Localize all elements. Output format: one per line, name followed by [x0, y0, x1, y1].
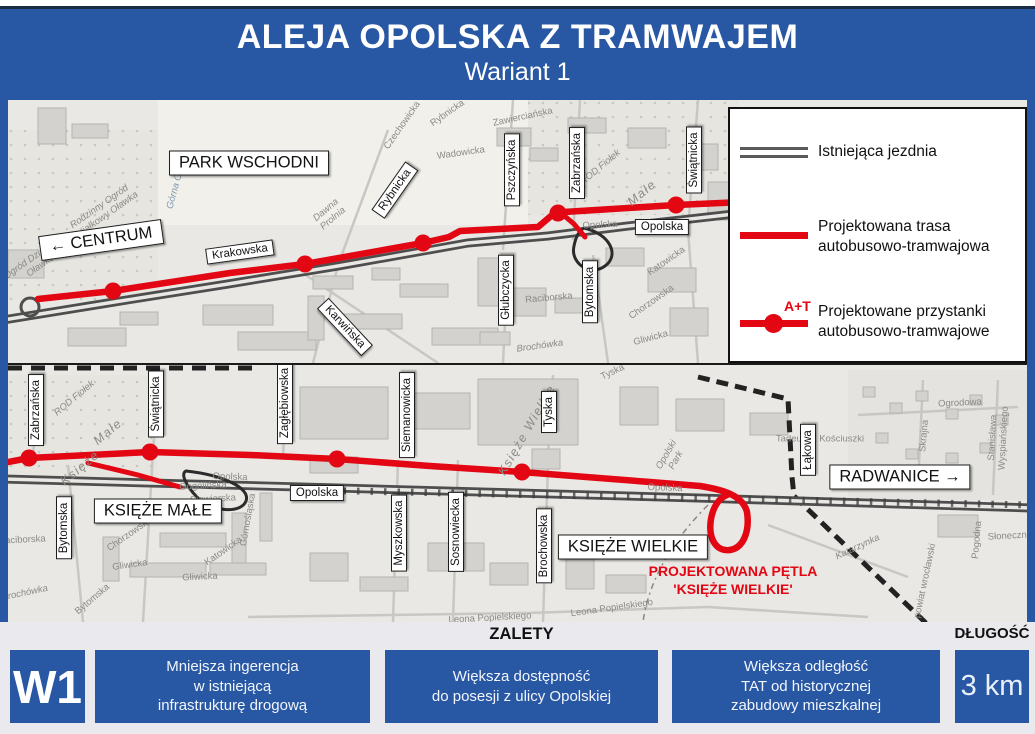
advantage-text: Większa odległość TAT od historycznej za…: [731, 657, 881, 716]
frame-right: [1027, 100, 1035, 622]
stop-dot-icon: [764, 314, 783, 333]
existing-road-swatch: [740, 147, 808, 158]
advantage-box-1: Mniejsza ingerencja w istniejącą infrast…: [95, 650, 370, 723]
legend-label: Projektowane przystanki autobusowo-tramw…: [818, 302, 989, 342]
street-label: Opolska: [635, 219, 689, 235]
street-label: Myszkowska: [391, 494, 407, 571]
street-label: Zabrzańska: [569, 127, 585, 199]
stop-marker-text: A+T: [784, 298, 811, 314]
street-label: Siemanowicka: [399, 372, 415, 458]
advantage-box-2: Większa dostępność do posesji z ulicy Op…: [385, 650, 658, 723]
legend: Istniejąca jezdnia Projektowana trasa au…: [728, 107, 1027, 363]
street-label: Brochowska: [536, 509, 552, 584]
street-label: Głubczycka: [498, 254, 514, 325]
area-label: Słoneczna: [988, 530, 1027, 543]
area-label: Ogrodowa: [938, 397, 982, 410]
slide: ALEJA OPOLSKA Z TRAMWAJEM Wariant 1: [0, 0, 1035, 734]
advantage-text: Mniejsza ingerencja w istniejącą infrast…: [158, 657, 307, 716]
area-label: Gliwicka: [182, 572, 218, 585]
street-label: Zabrzańska: [28, 374, 44, 446]
page-title: ALEJA OPOLSKA Z TRAMWAJEM: [0, 18, 1035, 57]
footer: ZALETY DŁUGOŚĆ W1 Mniejsza ingerencja w …: [0, 622, 1035, 734]
planned-stop-swatch: A+T: [740, 320, 808, 327]
street-label: KSIĘŻE WIELKIE: [558, 535, 708, 560]
map-panel-south: ZabrzańskaŚwiątnickaZagłębiowskaBytomska…: [8, 365, 1027, 622]
advantage-text: Większa dostępność do posesji z ulicy Op…: [432, 667, 611, 706]
street-label: Opolska: [290, 485, 344, 501]
area-label: Opolska: [582, 220, 617, 233]
area-label: Stanisława Wyspiańskiego: [986, 406, 1011, 471]
legend-label: Projektowana trasa autobusowo-tramwajowa: [818, 217, 989, 257]
street-label: Świątnicka: [686, 127, 702, 194]
street-label: Łąkowa: [800, 424, 816, 476]
street-label: Bytomska: [582, 261, 598, 324]
length-value: 3 km: [955, 650, 1029, 723]
street-label: Sosnowiecka: [448, 492, 464, 572]
street-label: Zagłębiowska: [277, 365, 293, 444]
street-label: Świątnicka: [148, 371, 164, 438]
header: ALEJA OPOLSKA Z TRAMWAJEM Wariant 1: [0, 6, 1035, 100]
planned-route-swatch: [740, 232, 808, 239]
street-label: Bytomska: [56, 497, 72, 560]
area-label: Opolska: [647, 483, 682, 495]
legend-label: Istniejąca jezdnia: [818, 142, 937, 162]
street-label: RADWANICE →: [829, 465, 970, 490]
frame-left: [0, 100, 8, 622]
advantages-heading: ZALETY: [385, 625, 658, 644]
variant-badge: W1: [10, 650, 85, 723]
street-label: KSIĘŻE MAŁE: [94, 499, 222, 524]
page-subtitle: Wariant 1: [0, 58, 1035, 87]
length-heading: DŁUGOŚĆ: [948, 625, 1035, 642]
street-label: PARK WSCHODNI: [169, 151, 329, 176]
loop-caption: PROJEKTOWANA PĘTLA 'KSIĘŻE WIELKIE': [649, 562, 818, 598]
advantage-box-3: Większa odległość TAT od historycznej za…: [672, 650, 940, 723]
area-label: Tadeusza Kościuszki: [776, 435, 864, 446]
street-label: Tyska: [541, 391, 557, 433]
legend-item-planned-stops: A+T Projektowane przystanki autobusowo-t…: [730, 302, 1025, 309]
street-label: Pszczyńska: [504, 134, 520, 207]
